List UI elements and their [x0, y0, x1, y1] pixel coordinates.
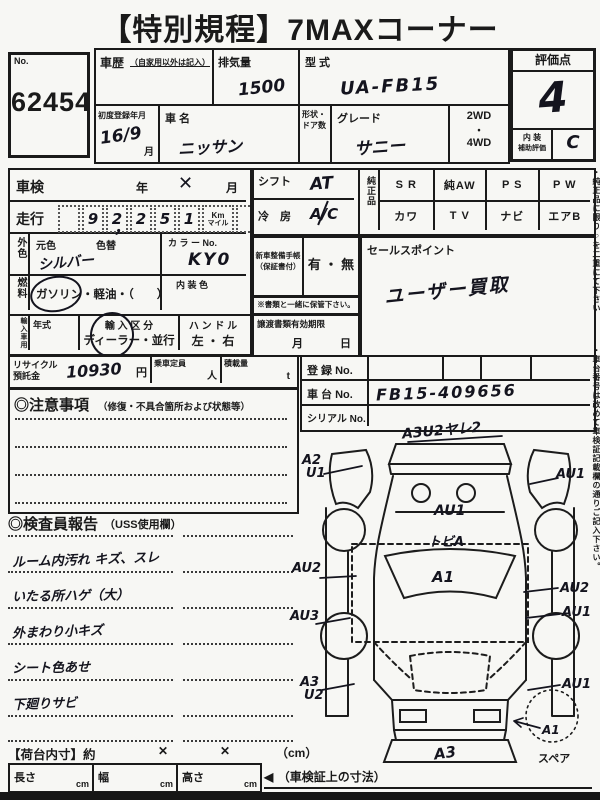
sales-point-box: セールスポイント ユーザー買取: [360, 236, 596, 357]
transfer-label: 譲渡書類有効期限: [257, 318, 325, 330]
height-unit: cm: [244, 779, 257, 789]
ext-color-value: シルバー: [37, 250, 95, 275]
lot-number-label: No.: [14, 56, 29, 66]
shaken-year-label: 年: [136, 179, 148, 196]
cautions-line: [15, 474, 287, 476]
sales-point-label: セールスポイント: [367, 242, 455, 258]
shaken-label: 車検: [16, 177, 44, 197]
rating-box: 評価点 4 内 装 補助評価 C: [510, 48, 596, 162]
model-code-label: 型 式: [305, 54, 330, 70]
report-line: [8, 715, 173, 717]
length-unit: cm: [76, 779, 89, 789]
cargo-unit: （cm）: [276, 744, 317, 761]
registration-row: 登 録 No.: [302, 357, 590, 381]
inspector-note: （USS使用欄）: [104, 516, 182, 532]
drive-4wd: 4WD: [450, 137, 508, 149]
drive-2wd: 2WD: [450, 110, 508, 122]
report-line: [183, 679, 293, 681]
ext-color-side-label: 外色: [10, 234, 30, 276]
load-cell: 積載量 t: [222, 357, 293, 383]
remark-line: ルーム内汚れ キズ、スレ: [12, 546, 160, 570]
history-cell: 車歴 （自家用以外は記入）: [96, 50, 214, 106]
transfer-day: 日: [340, 335, 351, 351]
inspection-box: 車検 年 ✕ 月 走行 9 2 2 5 1 Km マイル ，: [8, 168, 252, 316]
height-cell: 高さ cm: [178, 765, 260, 791]
service-book-label: 新車整備手帳 （保証書付）: [254, 238, 304, 295]
inspector-title: ◎検査員報告: [8, 513, 98, 534]
mileage-digits: 9 2 2 5 1 Km マイル: [58, 205, 258, 233]
model-code-value: UA-FB15: [340, 73, 441, 99]
registry-divider: [530, 357, 532, 381]
cautions-title: ◎注意事項: [14, 394, 89, 415]
base-color-label: 元色: [36, 237, 56, 252]
equipment-item: カワ: [380, 200, 433, 230]
recycle-label2: 預託金: [13, 369, 40, 382]
keep-note-box: ※書類と一緒に保管下さい。: [252, 296, 360, 315]
int-color-cell: 内 装 色: [160, 276, 246, 310]
chassis-label: 車 台 No.: [307, 386, 353, 402]
recycle-cell: リサイクル 預託金 10930 円: [10, 357, 152, 383]
registry-table: 登 録 No. 車 台 No. FB15-409656 シリアル No.: [300, 355, 596, 432]
dimensions-table: 長さ cm 幅 cm 高さ cm: [8, 763, 262, 793]
dimension-note-row: ◀ （車検証上の寸法）: [264, 768, 386, 786]
history-label: 車歴: [100, 54, 124, 71]
repaint-label: 色替: [96, 237, 116, 252]
interior-rating-label: 内 装 補助評価: [513, 130, 553, 159]
header-table: 車歴 （自家用以外は記入） 排気量 1500 型 式 UA-FB15 初度登録年…: [94, 48, 510, 164]
make-label: 車 名: [165, 110, 190, 126]
car-damage-diagram: A3U2ヤレ2 A2 U1 AU1 AU1 トビA A1 AU2 AU2 AU3…: [290, 428, 592, 768]
report-line: [8, 535, 173, 537]
handle-cell: ハ ン ド ル 左 ・ 右: [180, 316, 246, 350]
lot-number-value: 62454: [11, 87, 87, 118]
report-line: [183, 740, 293, 742]
first-reg-cell: 初度登録年月 16/9 月: [96, 106, 160, 162]
report-line: [8, 571, 173, 573]
registry-divider: [480, 357, 482, 381]
report-line: [8, 679, 173, 681]
car-outline-drawing: [290, 428, 592, 768]
body-door-cell: 形状・ドア数: [300, 106, 332, 162]
color-no-label: カ ラ ー No.: [168, 236, 217, 249]
page-title: 【特別規程】7MAXコーナー: [0, 5, 600, 49]
fuel-row: 燃料 ガソリン・軽油・（ ） 内 装 色: [10, 276, 246, 310]
drive-cell: 2WD ・ 4WD: [450, 106, 508, 162]
model-code-cell: 型 式 UA-FB15: [300, 50, 508, 106]
color-no-cell: カ ラ ー No. KY0: [160, 234, 246, 276]
body-door-label: 形状・ドア数: [302, 109, 328, 131]
first-reg-value: 16/9: [99, 123, 143, 149]
mileage-digit-cell: 2: [130, 205, 152, 233]
displacement-value: 1500: [237, 76, 286, 101]
left-arrow-icon: ◀: [264, 770, 273, 784]
cargo-x2-mark: ✕: [220, 744, 230, 758]
shift-value: AT: [309, 173, 333, 195]
side-note-genuine: ・純正品に限り○を二重にて下さい: [591, 168, 600, 340]
report-line: [183, 535, 293, 537]
grade-label: グレード: [337, 110, 381, 126]
transfer-month: 月: [292, 335, 303, 351]
equipment-item: エアB: [538, 200, 591, 230]
report-line: [8, 740, 173, 742]
recycle-box: リサイクル 預託金 10930 円 乗車定員 人 積載量 t: [8, 355, 299, 389]
lot-number-box: No. 62454: [8, 52, 90, 158]
side-note-chassis: ・車台番号は改めて車検証記載欄の通りご記入下さい。: [591, 346, 600, 572]
equipment-item: ナビ: [485, 200, 538, 230]
chassis-value: FB15-409656: [376, 381, 517, 405]
cargo-size-row: 【荷台内寸】約 ✕ ✕ （cm）: [8, 744, 378, 762]
bottom-bar: [0, 792, 600, 800]
remark-line: 下廻りサビ: [12, 692, 78, 713]
mileage-row: 走行 9 2 2 5 1 Km マイル ，: [10, 202, 246, 234]
shaken-month-label: 月: [226, 179, 238, 196]
first-reg-label: 初度登録年月: [98, 110, 146, 121]
fuel-circle-annotation: [27, 272, 84, 316]
spare-tire-label: スペア: [538, 750, 570, 766]
capacity-unit: 人: [207, 367, 217, 382]
grade-cell: グレード サニー: [332, 106, 450, 162]
mileage-digit-cell: [58, 205, 80, 233]
mileage-unit-cell: Km マイル: [202, 205, 234, 233]
diagram-mark-left-mid: AU2: [292, 562, 321, 575]
width-unit: cm: [160, 779, 173, 789]
aircon-row: 冷 房 A/C: [254, 200, 354, 230]
width-label: 幅: [98, 769, 109, 785]
handle-options: 左 ・ 右: [180, 332, 246, 349]
color-no-value: KY0: [188, 250, 231, 270]
remark-line: 外まわり小キズ: [12, 619, 104, 641]
import-box: 輸入車用 年式 輸 入 区 分 ディーラー・並行 ハ ン ド ル 左 ・ 右: [8, 314, 252, 356]
shaken-row: 車検 年 ✕ 月: [10, 170, 246, 202]
diagram-mark-right-mid: AU2: [560, 582, 589, 595]
equipment-item: 純AW: [433, 170, 486, 200]
diagram-mark-left-bottom: A3 U2: [300, 676, 324, 702]
report-line: [183, 643, 293, 645]
serial-label: シリアル No.: [307, 410, 366, 425]
make-cell: 車 名 ニッサン: [160, 106, 300, 162]
diagram-mark-roof: A1: [432, 570, 454, 585]
equipment-box: 純正品 S R 純AW P S P W カワ T V ナビ エアB: [358, 168, 596, 236]
dimension-note: （車検証上の寸法）: [278, 770, 386, 784]
recycle-unit: 円: [136, 364, 147, 380]
cautions-line: [15, 418, 287, 420]
displacement-label: 排気量: [218, 54, 251, 70]
report-line: [183, 715, 293, 717]
interior-rating-row: 内 装 補助評価 C: [513, 128, 593, 159]
load-unit: t: [287, 371, 290, 382]
ext-color-row: 外色 元色 色替 シルバー カ ラ ー No. KY0: [10, 234, 246, 276]
service-book-box: 新車整備手帳 （保証書付） 有 ・ 無: [252, 236, 360, 297]
capacity-label: 乗車定員: [154, 358, 186, 369]
mileage-digit-cell: 9: [82, 205, 104, 233]
length-label: 長さ: [14, 769, 36, 785]
mileage-label: 走行: [16, 209, 44, 229]
shift-row: シフト AT: [254, 170, 354, 200]
displacement-cell: 排気量 1500: [214, 50, 300, 106]
inspector-report: ◎検査員報告 （USS使用欄） ルーム内汚れ キズ、スレ いたる所ハゲ（大） 外…: [8, 513, 295, 743]
cargo-label: 【荷台内寸】約: [8, 744, 96, 763]
diagram-mark-rear-bumper: A3: [433, 745, 457, 763]
report-line: [183, 571, 293, 573]
drive-dot: ・: [450, 122, 508, 137]
cautions-line: [15, 502, 287, 504]
diagram-mark-rear: A1: [542, 724, 560, 736]
diagram-mark-right-bottom: AU1: [562, 678, 591, 691]
import-year-label: 年式: [33, 318, 51, 331]
width-cell: 幅 cm: [94, 765, 178, 791]
service-book-options: 有 ・ 無: [304, 238, 358, 295]
diagram-mark-right-top: AU1: [556, 468, 585, 481]
registration-label: 登 録 No.: [307, 362, 353, 378]
shift-aircon-box: シフト AT 冷 房 A/C: [252, 168, 360, 236]
cautions-box: ◎注意事項 （修復・不具合箇所および状態等）: [8, 388, 299, 514]
capacity-cell: 乗車定員 人: [152, 357, 222, 383]
first-reg-unit: 月: [144, 143, 154, 158]
remark-line: シート色あせ: [12, 656, 90, 676]
import-class-cell: 輸 入 区 分 ディーラー・並行: [80, 316, 180, 350]
report-line: [8, 607, 173, 609]
diagram-mark-hood: AU1: [434, 504, 465, 518]
length-cell: 長さ cm: [10, 765, 94, 791]
registry-divider: [442, 357, 444, 381]
rating-score: 4: [511, 69, 595, 128]
load-label: 積載量: [224, 358, 248, 369]
footer-rule: [264, 787, 592, 789]
int-color-label: 内 装 色: [176, 278, 208, 291]
report-line: [183, 607, 293, 609]
equipment-side-label: 純正品: [360, 170, 380, 230]
report-line: [8, 643, 173, 645]
rating-title: 評価点: [513, 51, 593, 72]
equipment-item: S R: [380, 170, 433, 200]
equipment-item: P S: [485, 170, 538, 200]
import-year-cell: 年式: [30, 316, 80, 350]
registry-divider: [367, 406, 369, 426]
import-side-label: 輸入車用: [10, 316, 30, 350]
handle-label: ハ ン ド ル: [180, 317, 246, 332]
mileage-digit-cell: 1: [178, 205, 200, 233]
cargo-x1-mark: ✕: [158, 744, 168, 758]
diagram-mark-left-low: AU3: [290, 610, 319, 623]
make-value: ニッサン: [177, 132, 242, 159]
cautions-note: （修復・不具合箇所および状態等）: [98, 399, 250, 413]
diagram-mark-left-top: A2 U1: [302, 454, 326, 480]
recycle-value: 10930: [65, 359, 122, 382]
mileage-digit-cell: 5: [154, 205, 176, 233]
interior-rating-value: C: [553, 130, 593, 159]
equipment-item: T V: [433, 200, 486, 230]
shift-label: シフト: [258, 173, 291, 189]
shaken-x-mark: ✕: [178, 173, 193, 194]
grade-value: サニー: [353, 131, 406, 159]
registry-divider: [367, 357, 369, 381]
auction-sheet: 【特別規程】7MAXコーナー No. 62454 車歴 （自家用以外は記入） 排…: [0, 0, 600, 800]
chassis-row: 車 台 No. FB15-409656: [302, 381, 590, 406]
history-note: （自家用以外は記入）: [130, 57, 210, 68]
remark-line: いたる所ハゲ（大）: [12, 584, 129, 605]
diagram-mark-right-low: AU1: [562, 606, 591, 619]
diagram-mark-windshield: トビA: [428, 536, 464, 549]
equipment-grid: S R 純AW P S P W カワ T V ナビ エアB: [380, 170, 590, 230]
height-label: 高さ: [182, 769, 204, 785]
cautions-line: [15, 446, 287, 448]
equipment-item: P W: [538, 170, 591, 200]
registry-divider: [367, 381, 369, 406]
sales-point-value: ユーザー買取: [383, 270, 511, 310]
transfer-box: 譲渡書類有効期限 月 日: [252, 314, 360, 357]
aircon-label: 冷 房: [258, 208, 291, 224]
fuel-side-label: 燃料: [10, 276, 30, 310]
keep-note: ※書類と一緒に保管下さい。: [254, 298, 358, 311]
